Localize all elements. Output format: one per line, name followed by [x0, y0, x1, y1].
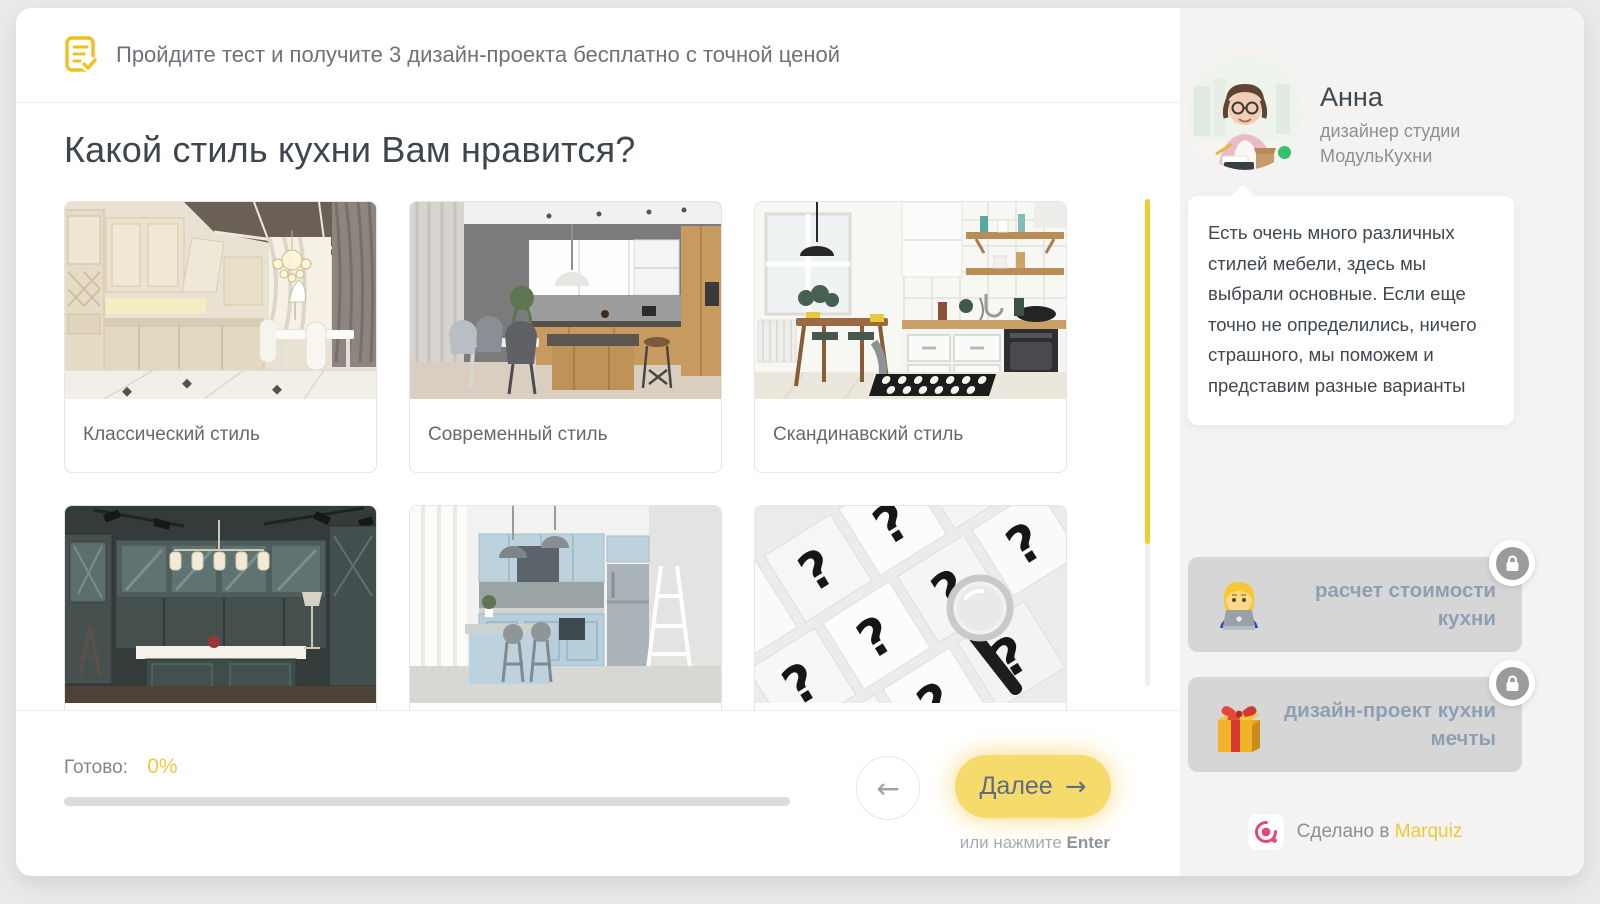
- option-label: Скандинавский стиль: [755, 399, 1066, 471]
- woman-technologist-emoji-icon: [1210, 576, 1268, 634]
- option-card-scandinavian[interactable]: Скандинавский стиль: [754, 201, 1067, 473]
- arrow-right-icon: →: [1065, 772, 1087, 802]
- assistant-sidebar: Анна дизайнер студии МодульКухни Есть оч…: [1180, 8, 1584, 876]
- option-card-question-marks[interactable]: ???? ???? ???: [754, 505, 1067, 710]
- made-in-text: Сделано в Marquiz: [1297, 821, 1463, 843]
- marquiz-brand-link[interactable]: Marquiz: [1395, 821, 1463, 842]
- option-label: Классический стиль: [65, 399, 376, 471]
- designer-name: Анна: [1320, 82, 1500, 113]
- quiz-body: Какой стиль кухни Вам нравится?: [16, 103, 1180, 710]
- designer-block: Анна дизайнер студии МодульКухни: [1188, 56, 1500, 170]
- designer-avatar: [1188, 56, 1302, 170]
- online-status-dot: [1275, 143, 1294, 162]
- bonus-label: дизайн-проект кухни мечты: [1268, 697, 1496, 753]
- scrollbar-thumb[interactable]: [1145, 199, 1150, 544]
- quiz-footer: Готово: 0% ← Далее → или нажмите Enter: [16, 710, 1180, 876]
- gift-emoji-icon: [1210, 696, 1268, 754]
- bonus-list: расчет стоимости кухни: [1188, 557, 1522, 772]
- designer-message-text: Есть очень много различных стилей мебели…: [1208, 222, 1477, 396]
- option-card-dark-teal[interactable]: [64, 505, 377, 710]
- test-document-icon: [64, 35, 98, 75]
- scandinavian-kitchen-image: [755, 202, 1066, 399]
- marquiz-logo-icon: [1248, 814, 1284, 850]
- dark-teal-kitchen-image: [65, 506, 376, 703]
- classic-kitchen-image: [65, 202, 376, 399]
- designer-meta: Анна дизайнер студии МодульКухни: [1320, 56, 1500, 170]
- bonus-card-design-project: дизайн-проект кухни мечты: [1188, 677, 1522, 772]
- header-banner-text: Пройдите тест и получите 3 дизайн-проект…: [116, 42, 840, 68]
- designer-role: дизайнер студии МодульКухни: [1320, 119, 1500, 169]
- progress-line: Готово: 0%: [64, 755, 178, 779]
- quiz-app-window: Пройдите тест и получите 3 дизайн-проект…: [16, 8, 1584, 876]
- next-button[interactable]: Далее →: [955, 755, 1111, 818]
- lock-icon: [1496, 547, 1529, 580]
- option-label: Современный стиль: [410, 399, 721, 471]
- bonus-label: расчет стоимости кухни: [1268, 577, 1496, 633]
- lock-badge: [1489, 540, 1535, 586]
- arrow-left-icon: ←: [876, 772, 899, 805]
- question-title: Какой стиль кухни Вам нравится?: [64, 129, 1132, 171]
- designer-message-bubble: Есть очень много различных стилей мебели…: [1188, 196, 1514, 425]
- lock-icon: [1496, 667, 1529, 700]
- back-button[interactable]: ←: [856, 756, 920, 820]
- made-in-marquiz: Сделано в Marquiz: [1188, 814, 1522, 850]
- bonus-card-cost-estimate: расчет стоимости кухни: [1188, 557, 1522, 652]
- option-card-light-blue[interactable]: [409, 505, 722, 710]
- quiz-header: Пройдите тест и получите 3 дизайн-проект…: [16, 8, 1180, 103]
- option-card-modern[interactable]: Современный стиль: [409, 201, 722, 473]
- progress-value: 0%: [147, 755, 177, 778]
- next-button-label: Далее: [979, 772, 1052, 801]
- enter-hint: или нажмите Enter: [960, 833, 1110, 853]
- enter-key-label: Enter: [1067, 833, 1110, 852]
- quiz-panel: Пройдите тест и получите 3 дизайн-проект…: [16, 8, 1180, 876]
- progress-bar: [64, 797, 790, 806]
- option-card-classic[interactable]: Классический стиль: [64, 201, 377, 473]
- modern-kitchen-image: [410, 202, 721, 399]
- light-blue-kitchen-image: [410, 506, 721, 703]
- options-grid: Классический стиль: [64, 201, 1132, 710]
- lock-badge: [1489, 660, 1535, 706]
- content-scrollbar[interactable]: [1145, 199, 1150, 686]
- progress-label: Готово:: [64, 757, 128, 778]
- question-marks-image: ???? ???? ???: [755, 506, 1066, 703]
